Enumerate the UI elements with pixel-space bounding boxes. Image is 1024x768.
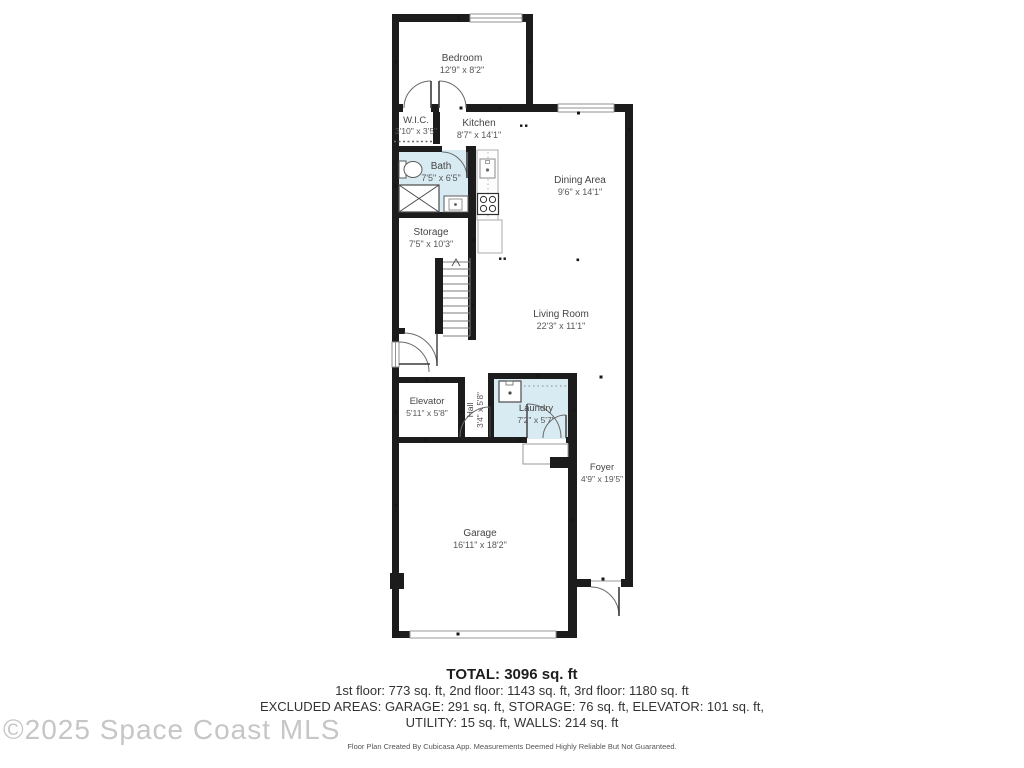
watermark: ©2025 Space Coast MLS — [3, 714, 340, 746]
toilet-icon — [399, 161, 422, 178]
storage-dims: 7'5" x 10'3" — [409, 239, 453, 249]
hall-label: Hall — [465, 403, 475, 418]
floor-plan-page: Bedroom 12'9" x 8'2" W.I.C. 3'10" x 3'5"… — [0, 0, 1024, 768]
washer-icon — [499, 381, 521, 402]
shower-icon — [399, 185, 439, 212]
storage-label: Storage — [413, 227, 448, 238]
foyer-dims: 4'9" x 19'5" — [581, 474, 623, 484]
elevator-label: Elevator — [410, 396, 445, 407]
total-area: TOTAL: 3096 sq. ft — [0, 666, 1024, 683]
garage-label: Garage — [463, 528, 497, 539]
bedroom-label: Bedroom — [442, 53, 483, 64]
stairs — [443, 258, 470, 336]
dining-window — [558, 104, 614, 112]
refrigerator-icon — [478, 220, 502, 253]
room-labels: Bedroom 12'9" x 8'2" W.I.C. 3'10" x 3'5"… — [395, 53, 623, 550]
dining-dims: 9'6" x 14'1" — [558, 187, 602, 197]
bedroom-dims: 12'9" x 8'2" — [440, 65, 484, 75]
kitchen-dims: 8'7" x 14'1" — [457, 130, 501, 140]
laundry-label: Laundry — [519, 403, 554, 414]
garage-dims: 16'11" x 18'2" — [453, 540, 507, 550]
stair-landing-window — [392, 342, 399, 367]
bath-label: Bath — [431, 161, 452, 172]
living-label: Living Room — [533, 309, 589, 320]
wic-dims: 3'10" x 3'5" — [395, 126, 437, 136]
bath-sink-icon — [444, 196, 468, 212]
garage-door — [410, 631, 556, 638]
bath-dims: 7'5" x 6'5" — [421, 173, 460, 183]
kitchen-sink-icon — [480, 159, 495, 178]
elevator-dims: 5'11" x 5'8" — [406, 408, 448, 418]
bedroom-window — [470, 14, 522, 22]
hall-dims: 3'4" x 5'8" — [476, 392, 485, 428]
stove-icon — [478, 194, 499, 215]
foyer-label: Foyer — [590, 462, 614, 473]
kitchen-label: Kitchen — [462, 118, 495, 129]
dining-label: Dining Area — [554, 175, 606, 186]
living-dims: 22'3" x 11'1" — [537, 321, 586, 331]
laundry-dims: 7'2" x 5'7" — [517, 415, 555, 425]
floor-areas: 1st floor: 773 sq. ft, 2nd floor: 1143 s… — [0, 683, 1024, 699]
wic-label: W.I.C. — [403, 115, 429, 126]
utility-closet — [523, 444, 570, 468]
kitchen-fixtures — [477, 150, 502, 253]
floor-plan-drawing: Bedroom 12'9" x 8'2" W.I.C. 3'10" x 3'5"… — [0, 0, 1024, 768]
excluded-areas: EXCLUDED AREAS: GARAGE: 291 sq. ft, STOR… — [0, 699, 1024, 715]
